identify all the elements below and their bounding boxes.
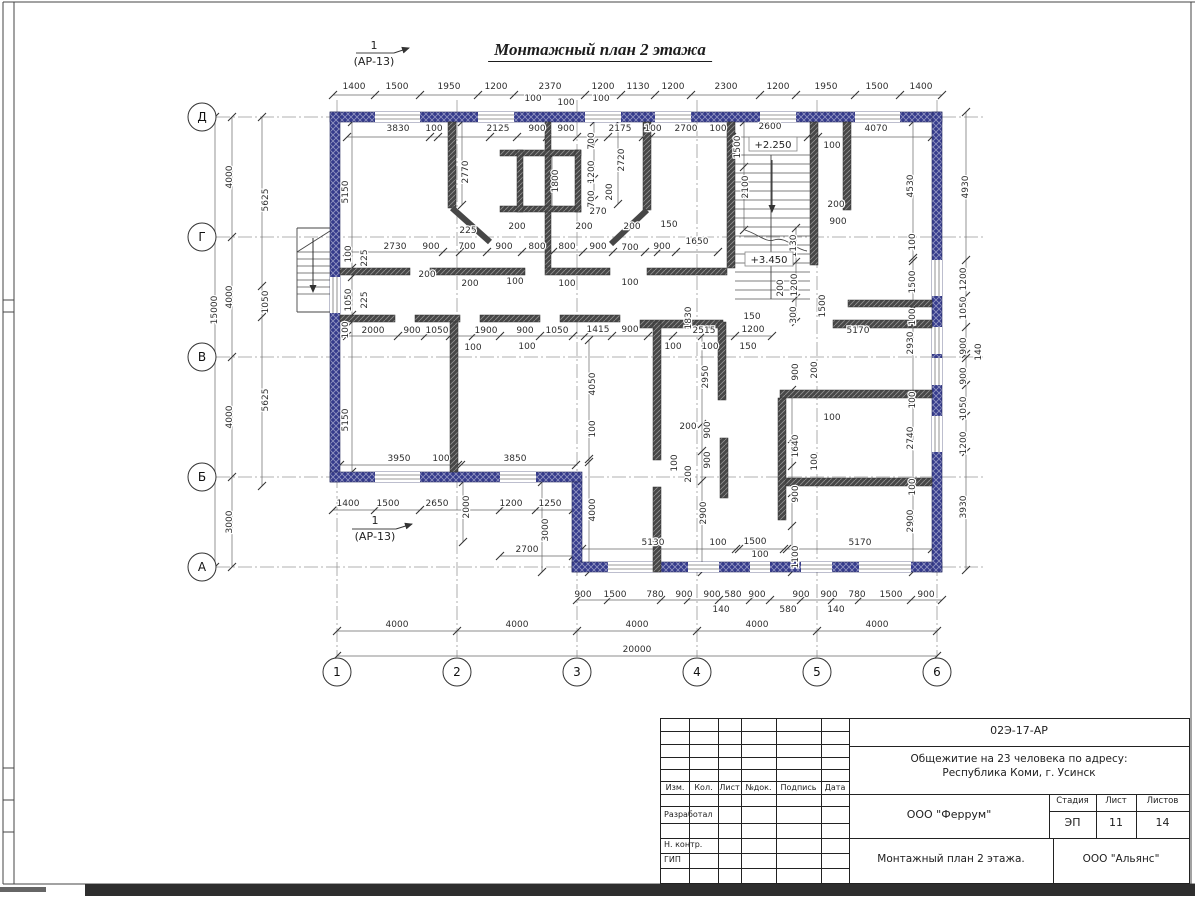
svg-text:5625: 5625: [261, 389, 271, 412]
svg-text:200: 200: [623, 222, 640, 232]
svg-text:1200: 1200: [959, 267, 969, 290]
svg-text:100: 100: [344, 245, 354, 262]
svg-text:5150: 5150: [341, 408, 351, 431]
svg-text:В: В: [198, 350, 206, 364]
svg-text:900: 900: [820, 590, 837, 600]
tb-row-gip: ГИП: [664, 855, 718, 864]
svg-text:5170: 5170: [849, 538, 872, 548]
svg-text:200: 200: [508, 222, 525, 232]
svg-text:100: 100: [558, 279, 575, 289]
svg-text:5170: 5170: [847, 326, 870, 336]
svg-text:100: 100: [518, 342, 535, 352]
tb-sheets-total: 14: [1136, 817, 1189, 830]
svg-text:900: 900: [917, 590, 934, 600]
svg-text:100: 100: [588, 420, 598, 437]
svg-text:2900: 2900: [699, 501, 709, 524]
svg-text:700: 700: [621, 243, 638, 253]
svg-text:700: 700: [587, 190, 597, 207]
svg-text:100: 100: [644, 124, 661, 134]
svg-text:2600: 2600: [759, 122, 782, 132]
svg-text:900: 900: [653, 242, 670, 252]
svg-text:2730: 2730: [384, 242, 407, 252]
svg-text:100: 100: [524, 94, 541, 104]
svg-text:4050: 4050: [588, 372, 598, 395]
svg-text:1500: 1500: [377, 499, 400, 509]
svg-text:2720: 2720: [617, 148, 627, 171]
svg-text:2900: 2900: [906, 509, 916, 532]
svg-text:1200: 1200: [767, 82, 790, 92]
svg-text:200: 200: [810, 361, 820, 378]
svg-text:1400: 1400: [910, 82, 933, 92]
svg-text:4930: 4930: [961, 175, 971, 198]
svg-text:1415: 1415: [587, 325, 610, 335]
svg-text:2000: 2000: [462, 495, 472, 518]
svg-text:1640: 1640: [791, 434, 801, 457]
svg-text:225: 225: [360, 249, 370, 266]
svg-text:2: 2: [453, 665, 461, 679]
svg-text:300: 300: [789, 306, 799, 323]
tb-sheets-label: Листов: [1136, 797, 1189, 807]
svg-text:900: 900: [574, 590, 591, 600]
tb-object-line2: Республика Коми, г. Усинск: [849, 767, 1189, 779]
svg-text:3000: 3000: [541, 518, 551, 541]
svg-text:1250: 1250: [539, 499, 562, 509]
svg-text:900: 900: [528, 124, 545, 134]
svg-text:900: 900: [791, 485, 801, 502]
svg-text:3: 3: [573, 665, 581, 679]
tb-col-date: Дата: [821, 783, 849, 792]
svg-text:225: 225: [360, 291, 370, 308]
tb-row-ncontr: Н. контр.: [664, 840, 718, 849]
svg-text:1050: 1050: [546, 326, 569, 336]
svg-text:780: 780: [646, 590, 663, 600]
svg-text:900: 900: [792, 590, 809, 600]
svg-text:1950: 1950: [438, 82, 461, 92]
svg-text:900: 900: [589, 242, 606, 252]
svg-text:140: 140: [827, 605, 844, 615]
tb-doc-title: Монтажный план 2 этажа.: [849, 853, 1053, 865]
svg-text:580: 580: [724, 590, 741, 600]
svg-text:100: 100: [810, 453, 820, 470]
svg-text:100: 100: [701, 342, 718, 352]
svg-text:1200: 1200: [485, 82, 508, 92]
svg-text:780: 780: [848, 590, 865, 600]
svg-text:100: 100: [432, 454, 449, 464]
svg-text:5625: 5625: [261, 189, 271, 212]
svg-text:900: 900: [621, 325, 638, 335]
svg-text:2930: 2930: [906, 331, 916, 354]
svg-text:4000: 4000: [225, 405, 235, 428]
svg-text:200: 200: [461, 279, 478, 289]
svg-text:1500: 1500: [604, 590, 627, 600]
svg-text:1650: 1650: [686, 237, 709, 247]
svg-text:200: 200: [684, 465, 694, 482]
svg-text:Г: Г: [198, 230, 205, 244]
svg-text:140: 140: [974, 343, 984, 360]
svg-text:1200: 1200: [662, 82, 685, 92]
svg-text:2175: 2175: [609, 124, 632, 134]
svg-text:4000: 4000: [225, 165, 235, 188]
svg-text:3000: 3000: [225, 510, 235, 533]
svg-text:200: 200: [679, 422, 696, 432]
svg-text:100: 100: [908, 391, 918, 408]
svg-text:15000: 15000: [210, 295, 220, 324]
svg-text:Д: Д: [197, 110, 206, 124]
svg-text:1200: 1200: [587, 160, 597, 183]
svg-text:4000: 4000: [866, 620, 889, 630]
svg-text:100: 100: [908, 233, 918, 250]
svg-text:6: 6: [933, 665, 941, 679]
svg-text:2515: 2515: [693, 326, 716, 336]
svg-text:800: 800: [528, 242, 545, 252]
svg-text:2740: 2740: [906, 426, 916, 449]
svg-text:4000: 4000: [225, 285, 235, 308]
svg-text:100: 100: [823, 413, 840, 423]
svg-text:+3.450: +3.450: [750, 255, 787, 266]
svg-text:3950: 3950: [388, 454, 411, 464]
svg-text:2700: 2700: [516, 545, 539, 555]
svg-text:100: 100: [908, 308, 918, 325]
svg-text:150: 150: [739, 342, 756, 352]
svg-text:1400: 1400: [343, 82, 366, 92]
svg-text:1100: 1100: [791, 545, 801, 568]
svg-text:2100: 2100: [741, 175, 751, 198]
tb-col-doc: №док.: [741, 783, 776, 792]
svg-text:270: 270: [589, 207, 606, 217]
svg-text:100: 100: [621, 278, 638, 288]
svg-text:А: А: [198, 560, 207, 574]
svg-text:900: 900: [703, 451, 713, 468]
svg-text:140: 140: [712, 605, 729, 615]
svg-text:900: 900: [516, 326, 533, 336]
svg-text:580: 580: [779, 605, 796, 615]
tb-col-sign: Подпись: [776, 783, 821, 792]
svg-text:5130: 5130: [642, 538, 665, 548]
svg-text:1950: 1950: [815, 82, 838, 92]
svg-text:4000: 4000: [506, 620, 529, 630]
tb-doc-number: 02Э-17-АР: [849, 725, 1189, 738]
svg-text:100: 100: [557, 98, 574, 108]
svg-text:1500: 1500: [733, 135, 743, 158]
svg-text:100: 100: [464, 343, 481, 353]
svg-text:(АР-13): (АР-13): [354, 55, 395, 68]
svg-text:2370: 2370: [539, 82, 562, 92]
svg-text:4000: 4000: [746, 620, 769, 630]
svg-text:1500: 1500: [880, 590, 903, 600]
svg-text:3850: 3850: [504, 454, 527, 464]
svg-text:1: 1: [371, 39, 378, 52]
svg-text:900: 900: [557, 124, 574, 134]
svg-text:+2.250: +2.250: [754, 140, 791, 151]
tb-col-kol: Кол.: [689, 783, 718, 792]
svg-text:4000: 4000: [588, 498, 598, 521]
svg-text:2125: 2125: [487, 124, 510, 134]
svg-text:100: 100: [425, 124, 442, 134]
svg-text:900: 900: [703, 421, 713, 438]
svg-text:1050: 1050: [261, 290, 271, 313]
title-block: Изм. Кол. Лист №док. Подпись Дата Разраб…: [660, 718, 1190, 884]
svg-text:1500: 1500: [744, 537, 767, 547]
svg-text:900: 900: [675, 590, 692, 600]
tb-col-izm: Изм.: [661, 783, 689, 792]
svg-text:100: 100: [908, 478, 918, 495]
svg-text:1: 1: [372, 514, 379, 527]
svg-text:Б: Б: [198, 470, 206, 484]
svg-text:100: 100: [823, 141, 840, 151]
svg-text:100: 100: [664, 342, 681, 352]
svg-text:5150: 5150: [341, 180, 351, 203]
svg-text:1130: 1130: [627, 82, 650, 92]
svg-text:5: 5: [813, 665, 821, 679]
svg-text:1050: 1050: [959, 396, 969, 419]
svg-text:900: 900: [703, 590, 720, 600]
svg-text:1500: 1500: [818, 294, 828, 317]
svg-text:1200: 1200: [742, 325, 765, 335]
svg-text:1800: 1800: [551, 169, 561, 192]
svg-text:900: 900: [748, 590, 765, 600]
svg-text:900: 900: [959, 337, 969, 354]
svg-text:2950: 2950: [701, 365, 711, 388]
svg-text:20000: 20000: [623, 645, 652, 655]
drawing-sheet: 1400150019501200237012001130120023001200…: [0, 0, 1200, 900]
svg-text:900: 900: [829, 217, 846, 227]
svg-text:200: 200: [605, 183, 615, 200]
svg-text:1050: 1050: [426, 326, 449, 336]
plan-title: Монтажный план 2 этажа: [488, 40, 712, 62]
svg-text:900: 900: [422, 242, 439, 252]
tb-sheet-number: 11: [1096, 817, 1136, 830]
svg-text:100: 100: [751, 550, 768, 560]
svg-text:4530: 4530: [906, 174, 916, 197]
svg-text:1500: 1500: [386, 82, 409, 92]
svg-text:1830: 1830: [684, 306, 694, 329]
tb-org: ООО "Феррум": [849, 809, 1049, 822]
svg-text:100: 100: [709, 538, 726, 548]
svg-text:100: 100: [670, 454, 680, 471]
svg-text:900: 900: [495, 242, 512, 252]
svg-text:1400: 1400: [337, 499, 360, 509]
svg-text:3930: 3930: [959, 495, 969, 518]
tb-stage-label: Стадия: [1049, 797, 1096, 807]
tb-sheet-label: Лист: [1096, 797, 1136, 807]
svg-text:225: 225: [459, 226, 476, 236]
svg-text:(АР-13): (АР-13): [355, 530, 396, 543]
svg-text:4000: 4000: [626, 620, 649, 630]
svg-text:1900: 1900: [475, 326, 498, 336]
svg-text:3830: 3830: [387, 124, 410, 134]
svg-text:4070: 4070: [865, 124, 888, 134]
svg-text:1050: 1050: [959, 296, 969, 319]
svg-text:1200: 1200: [790, 273, 800, 296]
svg-text:100: 100: [341, 321, 351, 338]
svg-text:1: 1: [333, 665, 341, 679]
svg-text:100: 100: [709, 124, 726, 134]
svg-text:1500: 1500: [908, 270, 918, 293]
svg-text:1200: 1200: [592, 82, 615, 92]
svg-text:900: 900: [403, 326, 420, 336]
svg-text:1200: 1200: [500, 499, 523, 509]
svg-text:1500: 1500: [866, 82, 889, 92]
svg-text:700: 700: [587, 132, 597, 149]
svg-text:2700: 2700: [675, 124, 698, 134]
svg-text:700: 700: [458, 242, 475, 252]
svg-text:200: 200: [827, 200, 844, 210]
svg-text:200: 200: [418, 270, 435, 280]
svg-text:150: 150: [743, 312, 760, 322]
svg-text:2000: 2000: [362, 326, 385, 336]
tb-org2: ООО "Альянс": [1053, 853, 1189, 865]
svg-text:2300: 2300: [715, 82, 738, 92]
svg-text:4000: 4000: [386, 620, 409, 630]
svg-text:100: 100: [506, 277, 523, 287]
svg-text:200: 200: [575, 222, 592, 232]
tb-object-line1: Общежитие на 23 человека по адресу:: [849, 753, 1189, 765]
svg-text:2650: 2650: [426, 499, 449, 509]
tb-stage-value: ЭП: [1049, 817, 1096, 830]
svg-text:1050: 1050: [344, 288, 354, 311]
svg-text:800: 800: [558, 242, 575, 252]
svg-text:100: 100: [592, 94, 609, 104]
svg-text:2770: 2770: [461, 160, 471, 183]
svg-text:1200: 1200: [959, 431, 969, 454]
svg-text:200: 200: [776, 279, 786, 296]
tb-col-list: Лист: [718, 783, 741, 792]
svg-text:4: 4: [693, 665, 701, 679]
svg-text:900: 900: [959, 367, 969, 384]
svg-text:900: 900: [791, 363, 801, 380]
tb-row-developed: Разработал: [664, 810, 718, 819]
svg-text:150: 150: [660, 220, 677, 230]
